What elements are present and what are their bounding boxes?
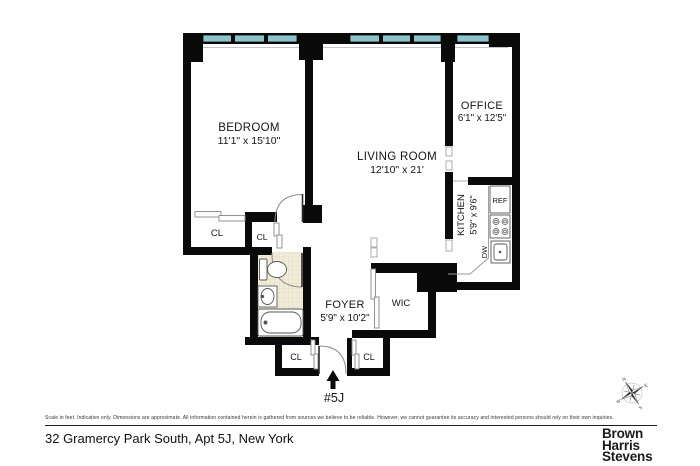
compass-e: E (643, 382, 648, 388)
closet-door-panel (314, 354, 318, 369)
footer-divider (45, 425, 657, 426)
compass-rose-icon: N E S W (607, 368, 657, 419)
wall-segment (303, 251, 311, 345)
door-frame-tick (371, 248, 377, 257)
unit-number-label: #5J (324, 391, 344, 405)
bedroom-door-arc (275, 195, 303, 223)
closet-door-panel (274, 223, 279, 236)
living-room-window (350, 35, 441, 42)
brand-line-3: Stevens (602, 451, 652, 463)
closet-door-panel (277, 235, 282, 248)
address-title: 32 Gramercy Park South, Apt 5J, New York (45, 431, 294, 446)
closet-door-panel (219, 216, 245, 222)
closet-door-panel (371, 269, 376, 299)
compass-w: W (615, 398, 622, 405)
floor-plan-drawing: BEDROOM 11'1" x 15'10" LIVING ROOM 12'10… (0, 0, 700, 466)
refrigerator-label: REF (493, 196, 508, 205)
foyer-label: FOYER (325, 299, 364, 311)
kitchen-dims: 5'9" x 9'6" (469, 195, 479, 234)
wall-segment (445, 36, 453, 146)
kitchen-faucet (499, 251, 502, 254)
window-mullion (410, 35, 414, 42)
wall-segment (303, 205, 322, 223)
bedroom-label: BEDROOM (218, 122, 280, 134)
wall-segment (436, 282, 520, 290)
kitchen-label: KITCHEN (456, 194, 467, 236)
disclaimer-text: Scale in feet. Indicative only. Dimensio… (45, 415, 657, 421)
window-mullion (379, 35, 383, 42)
closet-door-panel (352, 340, 356, 355)
brown-harris-stevens-logo: Brown Harris Stevens (602, 428, 652, 463)
closet-door-panel (311, 340, 315, 355)
wall-segment (183, 247, 272, 255)
office-window (457, 35, 489, 42)
tub-faucet (264, 321, 267, 324)
dishwasher-label: DW (480, 245, 489, 258)
closet-door-panel (195, 212, 221, 218)
living-room-dims: 12'10" x 21' (370, 164, 424, 176)
office-label: OFFICE (461, 100, 503, 112)
window-mullion (231, 35, 235, 42)
closet-label-entry-right: CL (363, 352, 375, 362)
wall-segment (352, 330, 436, 338)
closet-door-panel (375, 297, 380, 328)
door-frame-tick (446, 147, 452, 156)
stove (490, 215, 510, 238)
window-mullion (264, 35, 268, 42)
door-frame-tick (371, 238, 377, 247)
compass-star (614, 375, 650, 411)
closet-label-entry-left: CL (290, 352, 302, 362)
wall-segment (305, 44, 313, 210)
bedroom-window (203, 35, 297, 42)
toilet-bowl (268, 262, 287, 278)
wall-segment (468, 177, 520, 185)
toilet-tank (260, 259, 268, 280)
foyer-dims: 5'9" x 10'2" (320, 313, 370, 324)
closet-label-hall: CL (257, 232, 268, 242)
compass-s: S (638, 405, 643, 411)
living-room-label: LIVING ROOM (357, 151, 437, 163)
floor-plan-page: BEDROOM 11'1" x 15'10" LIVING ROOM 12'10… (0, 0, 700, 466)
closet-label-bedroom: CL (211, 228, 223, 239)
entry-arrow-icon (327, 370, 340, 389)
door-frame-tick (446, 161, 452, 170)
compass-diagonal (624, 385, 640, 401)
office-dims: 6'1" x 12'5" (458, 113, 507, 124)
wall-segment (183, 33, 191, 255)
compass-diagonals (624, 385, 640, 401)
sink-faucet (261, 295, 263, 297)
wall-segment (250, 247, 258, 345)
bedroom-dims: 11'1" x 15'10" (218, 135, 281, 147)
wall-segment (445, 172, 453, 239)
wall-segment (275, 368, 319, 376)
wic-label: WIC (392, 298, 411, 309)
wall-segment (512, 33, 520, 290)
entry-door-arc (319, 346, 346, 374)
compass-n: N (621, 376, 626, 382)
closet-door-panel (355, 354, 359, 369)
door-frame-tick (446, 240, 452, 251)
